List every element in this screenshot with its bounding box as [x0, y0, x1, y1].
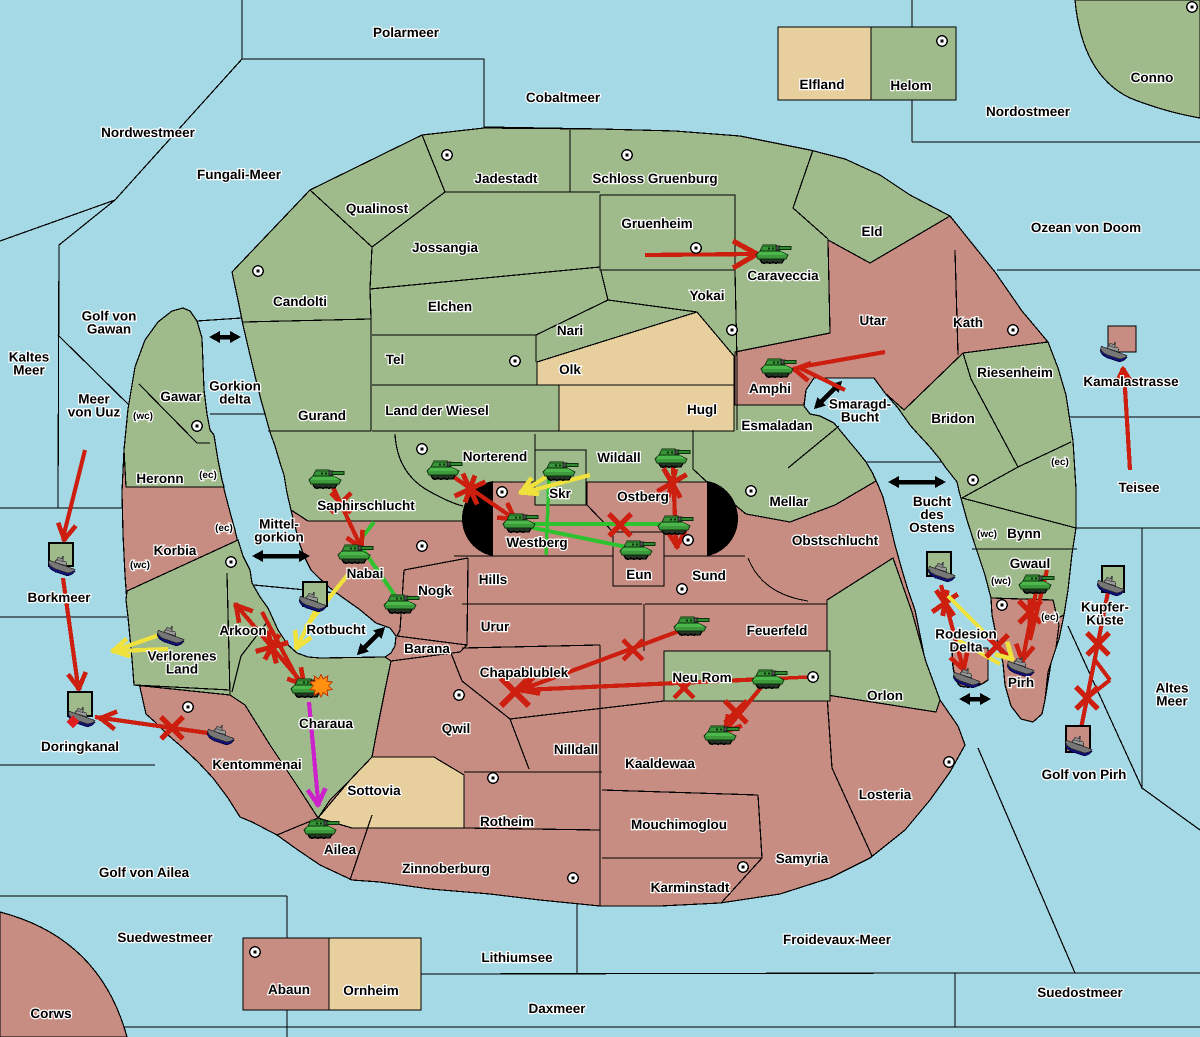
svg-text:(ec): (ec) [199, 470, 217, 481]
svg-text:Mellar: Mellar [769, 494, 809, 509]
svg-text:Karminstadt: Karminstadt [651, 880, 730, 895]
svg-text:Westberg: Westberg [506, 535, 567, 550]
svg-text:(ec): (ec) [215, 523, 233, 534]
svg-text:Barana: Barana [404, 641, 450, 656]
svg-text:Conno: Conno [1131, 70, 1174, 85]
svg-text:(wc): (wc) [133, 411, 153, 422]
svg-text:Nogk: Nogk [418, 583, 452, 598]
svg-text:Jadestadt: Jadestadt [474, 171, 538, 186]
svg-text:Mouchimoglou: Mouchimoglou [631, 817, 727, 832]
svg-text:Elchen: Elchen [428, 299, 472, 314]
svg-text:Bridon: Bridon [931, 411, 975, 426]
svg-text:AltesMeer: AltesMeer [1155, 681, 1188, 709]
svg-text:Nordostmeer: Nordostmeer [986, 104, 1071, 119]
svg-text:Helom: Helom [890, 78, 931, 93]
svg-text:(wc): (wc) [977, 529, 997, 540]
svg-text:Land der Wiesel: Land der Wiesel [385, 403, 488, 418]
svg-text:Jossangia: Jossangia [412, 240, 479, 255]
svg-text:Orlon: Orlon [867, 688, 903, 703]
svg-text:(ec): (ec) [1041, 612, 1059, 623]
svg-text:Gwaul: Gwaul [1010, 556, 1051, 571]
svg-text:Doringkanal: Doringkanal [41, 739, 119, 754]
svg-text:Riesenheim: Riesenheim [977, 365, 1053, 380]
svg-text:Abaun: Abaun [268, 982, 310, 997]
svg-text:Yokai: Yokai [689, 288, 724, 303]
svg-text:Neu Rom: Neu Rom [672, 670, 731, 685]
svg-text:Sund: Sund [692, 568, 726, 583]
svg-text:Cobaltmeer: Cobaltmeer [526, 90, 601, 105]
svg-text:Lithiumsee: Lithiumsee [481, 950, 553, 965]
svg-text:Utar: Utar [859, 313, 887, 328]
svg-text:Ailea: Ailea [324, 842, 357, 857]
svg-text:Eld: Eld [861, 224, 882, 239]
svg-text:Nabai: Nabai [347, 566, 384, 581]
svg-text:Nordwestmeer: Nordwestmeer [101, 125, 196, 140]
svg-text:Kaaldewaa: Kaaldewaa [625, 756, 695, 771]
svg-text:Ostberg: Ostberg [617, 489, 669, 504]
svg-text:Suedostmeer: Suedostmeer [1037, 985, 1123, 1000]
svg-text:Heronn: Heronn [136, 471, 183, 486]
svg-text:Qwil: Qwil [442, 721, 471, 736]
svg-text:Nilldall: Nilldall [554, 742, 598, 757]
svg-text:Wildall: Wildall [597, 450, 640, 465]
svg-text:Pirh: Pirh [1008, 675, 1034, 690]
svg-text:Golf vonGawan: Golf vonGawan [82, 309, 137, 337]
svg-text:Kath: Kath [953, 315, 983, 330]
svg-text:Olk: Olk [559, 362, 581, 377]
svg-text:Candolti: Candolti [273, 294, 327, 309]
svg-text:Korbia: Korbia [154, 543, 197, 558]
svg-text:Hugl: Hugl [687, 402, 717, 417]
svg-text:Gawar: Gawar [160, 389, 202, 404]
svg-text:Amphi: Amphi [749, 381, 791, 396]
svg-text:Losteria: Losteria [859, 787, 912, 802]
svg-text:Urur: Urur [481, 619, 510, 634]
svg-text:Tel: Tel [386, 352, 405, 367]
svg-text:Eun: Eun [626, 567, 652, 582]
svg-text:Suedwestmeer: Suedwestmeer [117, 930, 213, 945]
svg-text:(wc): (wc) [130, 560, 150, 571]
svg-text:Obstschlucht: Obstschlucht [792, 533, 879, 548]
svg-text:Ornheim: Ornheim [343, 983, 399, 998]
svg-text:(wc): (wc) [991, 576, 1011, 587]
svg-text:Kamalastrasse: Kamalastrasse [1083, 374, 1179, 389]
svg-text:Arkoon: Arkoon [219, 623, 266, 638]
svg-text:Charaua: Charaua [299, 716, 354, 731]
svg-text:Corws: Corws [30, 1006, 71, 1021]
svg-text:Polarmeer: Polarmeer [373, 25, 440, 40]
svg-text:Froidevaux-Meer: Froidevaux-Meer [783, 932, 892, 947]
svg-text:Saphirschlucht: Saphirschlucht [317, 498, 415, 513]
svg-text:Nari: Nari [557, 323, 583, 338]
svg-text:Skr: Skr [549, 486, 572, 501]
svg-text:Ozean von Doom: Ozean von Doom [1031, 220, 1141, 235]
svg-text:Rotheim: Rotheim [480, 814, 534, 829]
svg-text:Norterend: Norterend [463, 449, 528, 464]
svg-text:Mittel-gorkion: Mittel-gorkion [254, 517, 304, 545]
svg-text:Samyria: Samyria [776, 851, 829, 866]
svg-text:Feuerfeld: Feuerfeld [747, 623, 808, 638]
svg-text:Rotbucht: Rotbucht [306, 622, 366, 637]
svg-text:Daxmeer: Daxmeer [528, 1001, 586, 1016]
svg-text:Gruenheim: Gruenheim [621, 216, 692, 231]
svg-text:Esmaladan: Esmaladan [741, 418, 812, 433]
svg-text:Schloss Gruenburg: Schloss Gruenburg [592, 171, 717, 186]
svg-text:Gurand: Gurand [298, 408, 346, 423]
svg-text:Zinnoberburg: Zinnoberburg [402, 861, 490, 876]
svg-text:Golf von Pirh: Golf von Pirh [1042, 767, 1127, 782]
svg-text:Golf von Ailea: Golf von Ailea [99, 865, 190, 880]
svg-text:Caraveccia: Caraveccia [747, 268, 819, 283]
svg-text:Sottovia: Sottovia [347, 783, 401, 798]
svg-text:Teisee: Teisee [1118, 480, 1160, 495]
svg-text:Hills: Hills [479, 572, 508, 587]
svg-text:Bynn: Bynn [1007, 526, 1041, 541]
svg-text:Fungali-Meer: Fungali-Meer [197, 167, 282, 182]
svg-text:Elfland: Elfland [799, 77, 844, 92]
svg-text:Chapablublek: Chapablublek [480, 665, 569, 680]
svg-text:Kupfer-Küste: Kupfer-Küste [1081, 600, 1129, 628]
svg-text:Kentommenai: Kentommenai [212, 757, 301, 772]
svg-text:KaltesMeer: KaltesMeer [9, 350, 50, 378]
svg-text:Borkmeer: Borkmeer [27, 590, 91, 605]
svg-text:Qualinost: Qualinost [346, 201, 409, 216]
svg-text:(ec): (ec) [1051, 457, 1069, 468]
